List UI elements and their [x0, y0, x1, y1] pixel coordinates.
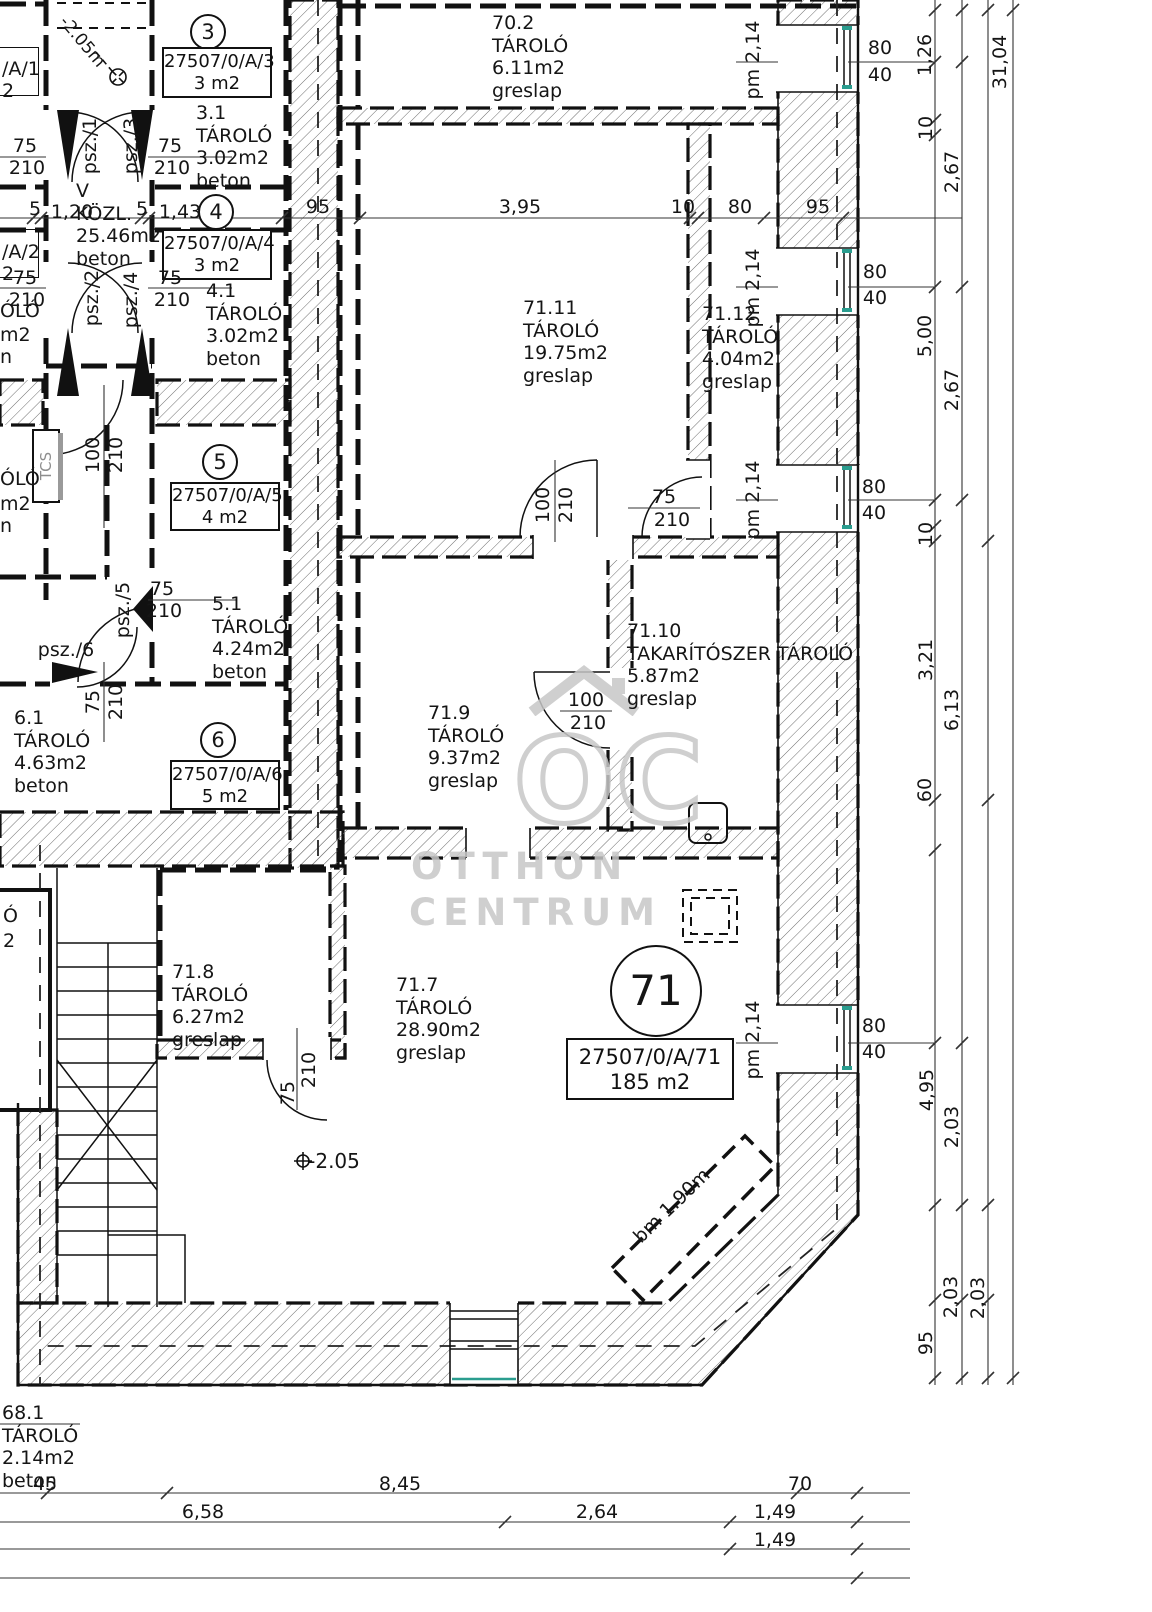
dimension-label: 2,64 — [576, 1501, 618, 1524]
room-label-line: TÁROLÓ — [702, 326, 778, 349]
dimension-label: 60 — [914, 778, 937, 802]
dimension-label: 10 — [915, 116, 938, 140]
room-6-1: 6.1TÁROLÓ4.63m2beton — [14, 707, 90, 797]
dimension-label: 40 — [862, 502, 886, 525]
dimension-label: 1,49 — [754, 1529, 796, 1552]
watermark-line1: OTTHON — [411, 848, 629, 885]
dimension-label: 100 — [82, 437, 105, 473]
dimension-label: 95 — [915, 1331, 938, 1355]
dimension-label: 1,26 — [914, 34, 937, 76]
parcel-box-line: 3 m2 — [164, 73, 270, 94]
annotation-label: pm 2,14 — [742, 21, 765, 100]
cut-room-label: ÓLÓ — [0, 300, 40, 323]
room-label-line: 5.87m2 — [627, 665, 853, 688]
dimension-label: 210 — [154, 157, 190, 180]
watermark-line2: CENTRUM — [409, 894, 662, 931]
room-3-1: 3.1TÁROLÓ3.02m2beton — [196, 102, 272, 192]
room-70-2: 70.2TÁROLÓ6.11m2greslap — [492, 12, 568, 102]
cut-room-label: n — [0, 515, 12, 538]
room-71-12: 71.12TÁROLÓ4.04m2greslap — [702, 303, 778, 393]
dimension-label: 1,20 — [51, 201, 93, 224]
watermark-monogram: OC — [514, 722, 705, 840]
room-label-line: TÁROLÓ — [206, 303, 282, 326]
room-71-10: 71.10TAKARÍTÓSZER TÁROLÓ5.87m2greslap — [627, 620, 853, 710]
parcel-box-line: 27507/0/A/71 — [568, 1045, 732, 1069]
dimension-label: 75 — [277, 1081, 300, 1105]
dimension-label: 3,21 — [915, 639, 938, 681]
dimension-label: 210 — [298, 1052, 321, 1088]
room-label-line: TÁROLÓ — [196, 125, 272, 148]
unit-circle-6: 6 — [200, 722, 236, 758]
parcel-box-3: 27507/0/A/33 m2 — [162, 47, 272, 98]
room-label-line: TÁROLÓ — [2, 1425, 78, 1448]
room-label-line: 4.04m2 — [702, 348, 778, 371]
room-label-line: TÁROLÓ — [396, 997, 481, 1020]
door-label: psz./3 — [120, 118, 143, 174]
dimension-label: 210 — [146, 600, 182, 623]
room-label-line: 71.10 — [627, 620, 853, 643]
dimension-label: 95 — [306, 196, 330, 219]
room-label-line: 68.1 — [2, 1402, 78, 1425]
room-label-line: 9.37m2 — [428, 747, 504, 770]
floor-plan: OC OTTHON CENTRUM 70.2TÁROLÓ6.11m2gresla… — [0, 0, 1152, 1612]
cut-room-label: 2 — [3, 930, 15, 953]
room-label-line: 4.63m2 — [14, 752, 90, 775]
dimension-label: 6,58 — [182, 1501, 224, 1524]
room-71-8: 71.8TÁROLÓ6.27m2greslap — [172, 961, 248, 1051]
room-label-line: beton — [206, 348, 282, 371]
parcel-box-line: 185 m2 — [568, 1070, 732, 1094]
room-label-line: 71.9 — [428, 702, 504, 725]
chimney-symbol — [683, 890, 737, 942]
room-4-1: 4.1TÁROLÓ3.02m2beton — [206, 280, 282, 370]
dimension-label: 95 — [806, 196, 830, 219]
door-label: psz./2 — [81, 270, 104, 326]
room-label-line: beton — [212, 661, 288, 684]
dimension-label: 210 — [570, 712, 606, 735]
dimension-label: 75 — [652, 486, 676, 509]
annotation-label: pm 2,14 — [742, 461, 765, 540]
dimension-label: 75 — [13, 135, 37, 158]
annotation-label: pm 2,14 — [742, 1001, 765, 1080]
dimension-label: 80 — [863, 261, 887, 284]
room-label-line: 28.90m2 — [396, 1019, 481, 1042]
dimension-label: 45 — [33, 1473, 57, 1496]
parcel-box-line: 4 m2 — [172, 507, 278, 528]
room-label-line: 6.11m2 — [492, 57, 568, 80]
door-label: psz./4 — [120, 272, 143, 328]
dimension-label: 210 — [105, 684, 128, 720]
room-label-line: TÁROLÓ — [523, 320, 608, 343]
room-label-line: beton — [76, 248, 161, 271]
room-71-9: 71.9TÁROLÓ9.37m2greslap — [428, 702, 504, 792]
dimension-label: 2,67 — [941, 369, 964, 411]
cut-room-label: m2 — [0, 493, 31, 516]
dimension-label: 2,03 — [941, 1106, 964, 1148]
unit-circle-3: 3 — [190, 14, 226, 50]
dimension-label: 4,95 — [916, 1069, 939, 1111]
parcel-box-6: 27507/0/A/65 m2 — [170, 760, 280, 810]
parcel-box-71: 27507/0/A/71185 m2 — [566, 1038, 734, 1100]
room-label-line: TÁROLÓ — [212, 616, 288, 639]
annotation-label: -2.05 — [308, 1150, 360, 1173]
cut-room-label: ÓLÓ — [0, 468, 40, 491]
room-label-line: TÁROLÓ — [14, 730, 90, 753]
room-label-line: 71.12 — [702, 303, 778, 326]
dimension-label: 40 — [868, 64, 892, 87]
parcel-box-line: 27507/0/A/4 — [164, 233, 270, 254]
parcel-box-cut — [0, 47, 39, 96]
room-label-line: TÁROLÓ — [428, 725, 504, 748]
dimension-label: 40 — [862, 1041, 886, 1064]
room-label-line: greslap — [428, 770, 504, 793]
dimension-label: 8,45 — [379, 1473, 421, 1496]
dimension-label: 10 — [671, 196, 695, 219]
dimension-label: 2,03 — [940, 1276, 963, 1318]
room-label-line: greslap — [523, 365, 608, 388]
room-label-line: 6.27m2 — [172, 1006, 248, 1029]
door-label: psz./6 — [38, 639, 94, 662]
parcel-box-line: 27507/0/A/3 — [164, 51, 270, 72]
dimension-label: 80 — [862, 1015, 886, 1038]
door-label: psz./5 — [112, 582, 135, 638]
parcel-box-cut — [0, 229, 39, 278]
room-label-line: greslap — [702, 371, 778, 394]
room-label-line: 3.1 — [196, 102, 272, 125]
dimension-label: 210 — [9, 157, 45, 180]
room-label-line: 71.11 — [523, 297, 608, 320]
room-label-line: 71.7 — [396, 974, 481, 997]
cut-room-label: m2 — [0, 324, 31, 347]
room-label-line: beton — [14, 775, 90, 798]
unit-circle-71: 71 — [610, 945, 702, 1037]
dimension-label: 31,04 — [989, 35, 1012, 89]
dimension-label: 80 — [862, 476, 886, 499]
unit-circle-5: 5 — [202, 444, 238, 480]
dimension-label: 40 — [863, 287, 887, 310]
cut-room-label: n — [0, 346, 12, 369]
room-label-line: 2.14m2 — [2, 1447, 78, 1470]
dimension-label: 1,43 — [159, 201, 201, 224]
room-label-line: greslap — [172, 1029, 248, 1052]
cut-room-label: Ó — [3, 905, 18, 928]
dimension-label: 210 — [654, 509, 690, 532]
room-label-line: greslap — [396, 1042, 481, 1065]
dimension-label: 75 — [158, 267, 182, 290]
parcel-box-line: 27507/0/A/5 — [172, 485, 278, 506]
dimension-label: 70 — [788, 1473, 812, 1496]
room-label-line: V — [76, 180, 161, 203]
room-label-line: beton — [196, 170, 272, 193]
room-label-line: TAKARÍTÓSZER TÁROLÓ — [627, 643, 853, 666]
room-kozl: VKÖZL.25.46m2beton — [76, 180, 161, 270]
dimension-label: 210 — [555, 487, 578, 523]
dimension-label: 6,13 — [941, 689, 964, 731]
unit-circle-4: 4 — [198, 194, 234, 230]
stairs — [57, 868, 185, 1307]
room-label-line: 5.1 — [212, 593, 288, 616]
dimension-label: 2,03 — [967, 1277, 990, 1319]
parcel-box-line: 27507/0/A/6 — [172, 764, 278, 785]
dimension-label: 80 — [728, 196, 752, 219]
dimension-label: 75 — [82, 690, 105, 714]
room-label-line: 71.8 — [172, 961, 248, 984]
parcel-box-5: 27507/0/A/54 m2 — [170, 482, 280, 531]
dimension-label: 80 — [868, 37, 892, 60]
door-label: psz./1 — [79, 118, 102, 174]
dimension-label: 75 — [158, 135, 182, 158]
dimension-label: 210 — [154, 289, 190, 312]
dimension-label: 100 — [532, 487, 555, 523]
room-label-line: 6.1 — [14, 707, 90, 730]
dimension-label: 5 — [136, 198, 148, 221]
dimension-label: 75 — [150, 578, 174, 601]
dimension-label: 1,49 — [754, 1501, 796, 1524]
room-71-7: 71.7TÁROLÓ28.90m2greslap — [396, 974, 481, 1064]
room-label-line: 3.02m2 — [206, 325, 282, 348]
room-label-line: 3.02m2 — [196, 147, 272, 170]
room-label-line: 19.75m2 — [523, 342, 608, 365]
room-label-line: 25.46m2 — [76, 225, 161, 248]
room-71-11: 71.11TÁROLÓ19.75m2greslap — [523, 297, 608, 387]
dimension-label: 5,00 — [914, 315, 937, 357]
dimension-label: 100 — [568, 689, 604, 712]
dimension-label: 3,95 — [499, 196, 541, 219]
room-label-line: 4.1 — [206, 280, 282, 303]
room-label-line: TÁROLÓ — [492, 35, 568, 58]
annotation-label: pm 2,14 — [742, 249, 765, 328]
room-label-line: 70.2 — [492, 12, 568, 35]
dimension-label: 10 — [915, 522, 938, 546]
room-label-line: 4.24m2 — [212, 638, 288, 661]
dimension-label: 210 — [105, 437, 128, 473]
room-label-line: TÁROLÓ — [172, 984, 248, 1007]
parcel-box-line: 5 m2 — [172, 786, 278, 807]
room-label-line: greslap — [627, 688, 853, 711]
dimension-label: 5 — [29, 198, 41, 221]
room-5-1: 5.1TÁROLÓ4.24m2beton — [212, 593, 288, 683]
room-label-line: greslap — [492, 80, 568, 103]
dimension-label: 2,67 — [941, 151, 964, 193]
